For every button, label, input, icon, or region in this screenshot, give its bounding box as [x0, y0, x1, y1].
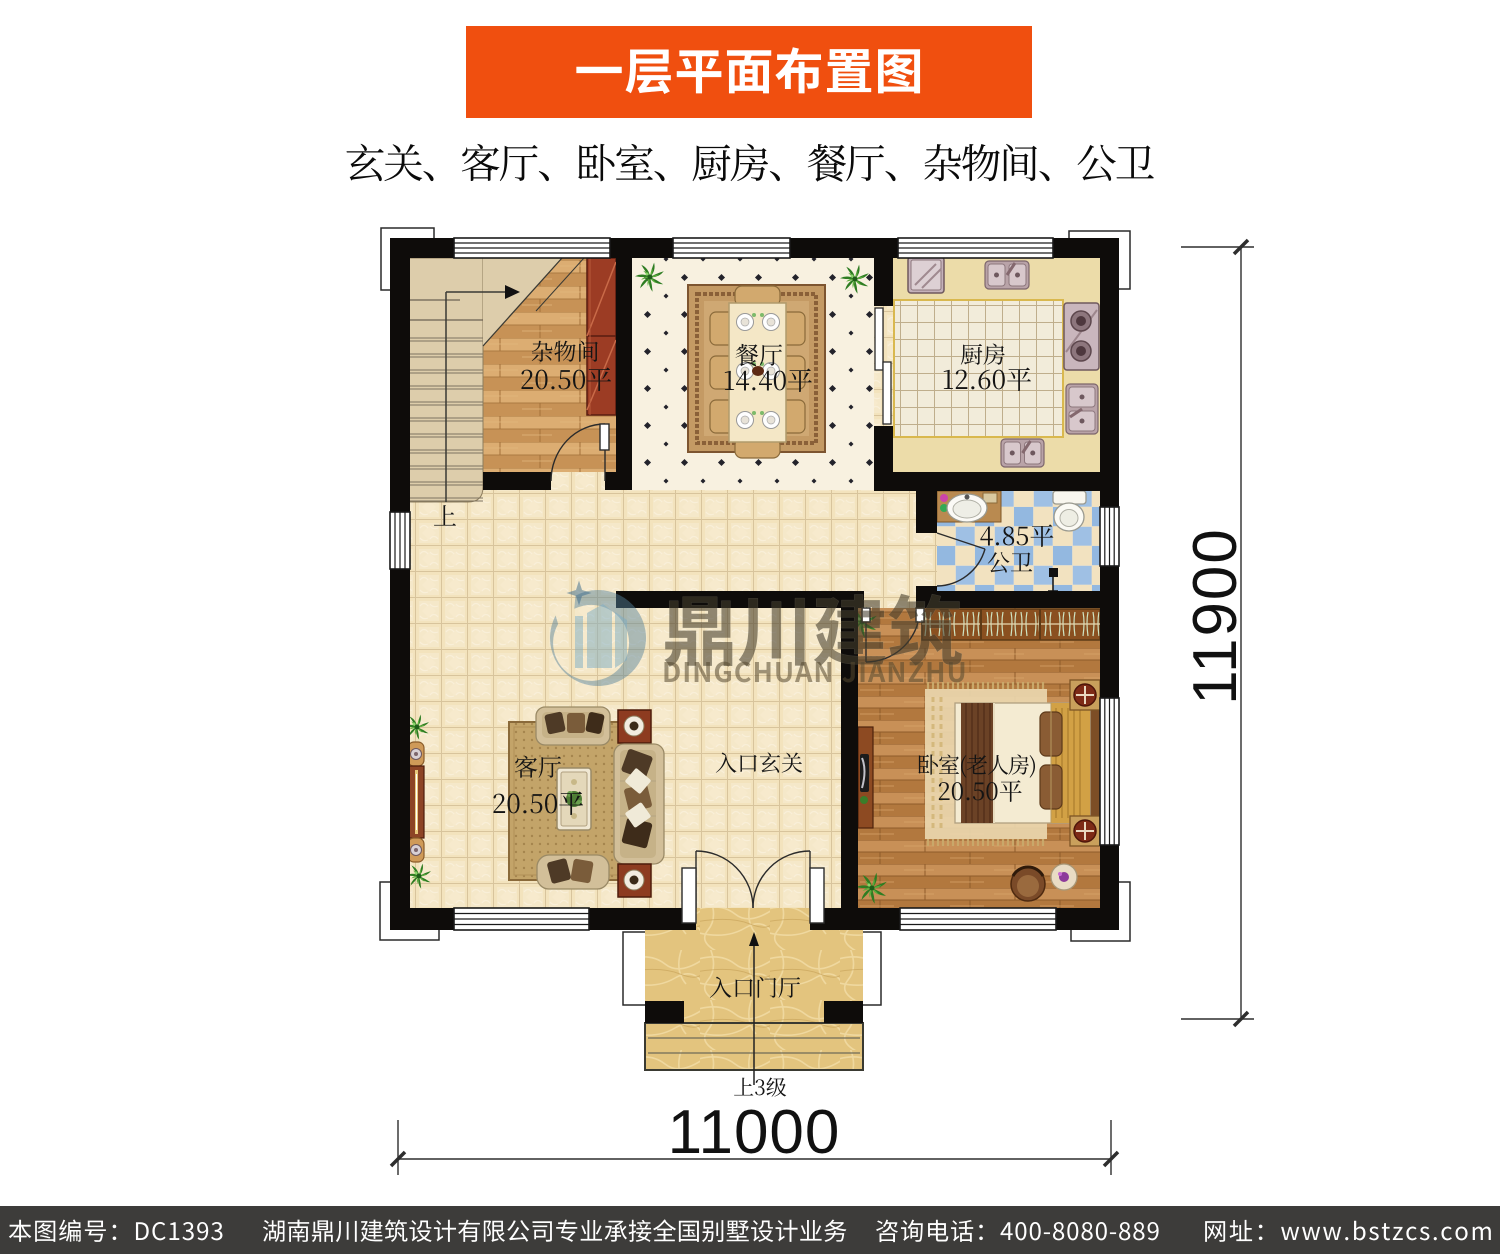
svg-text:11900: 11900: [1181, 527, 1250, 705]
svg-text:11000: 11000: [668, 1098, 841, 1167]
